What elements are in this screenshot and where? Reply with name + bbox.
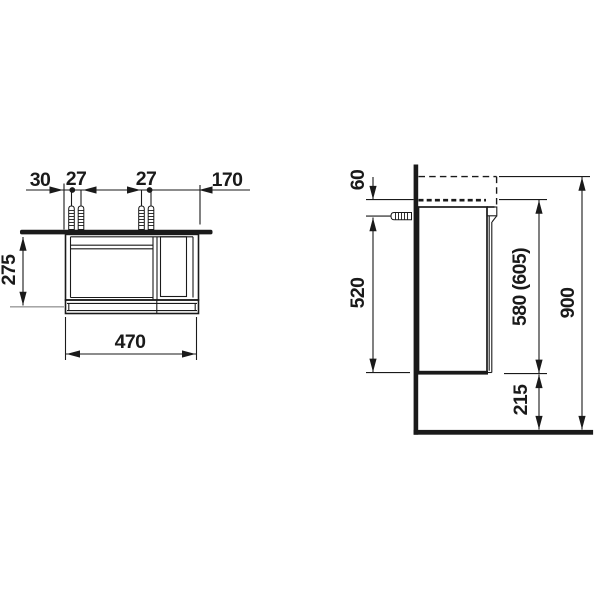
- floor-line: [414, 430, 593, 435]
- bottom-band: [66, 300, 199, 314]
- dimension-drawing: 30 27 27 170: [0, 0, 600, 600]
- dim-label-275: 275: [0, 254, 20, 285]
- arrowhead: [535, 200, 542, 214]
- arrowhead: [535, 375, 542, 389]
- arrowhead: [369, 218, 376, 232]
- side-dim-60: 60: [347, 169, 414, 216]
- front-width-dimension: 470: [66, 317, 197, 360]
- dim-label-900: 900: [557, 287, 579, 318]
- arrowhead: [50, 186, 64, 193]
- front-height-dimension: 275: [0, 237, 64, 307]
- arrowhead: [535, 360, 542, 374]
- dim-label-470: 470: [115, 331, 146, 353]
- dim-label-60: 60: [347, 169, 369, 190]
- side-dim-215: 215: [510, 374, 543, 429]
- mounting-screw-side: [391, 213, 412, 220]
- arrowhead: [578, 177, 585, 191]
- dim-label-215: 215: [510, 384, 532, 415]
- arrowhead: [19, 237, 26, 251]
- mounting-screw: [139, 206, 145, 230]
- front-top-dimension-chain: 30 27 27 170: [26, 168, 250, 230]
- side-dim-520: 520: [347, 218, 410, 373]
- arrowhead: [369, 359, 376, 373]
- arrowhead: [67, 350, 81, 357]
- arrowhead: [19, 292, 26, 306]
- mounting-screws-front: [69, 206, 154, 230]
- arrowhead: [535, 416, 542, 430]
- side-dim-580: 580 (605): [499, 200, 547, 374]
- dim-label-520: 520: [347, 277, 369, 308]
- dim-label-580: 580 (605): [509, 248, 531, 326]
- technical-drawing-canvas: 30 27 27 170: [0, 0, 600, 600]
- mounting-screw: [69, 206, 75, 230]
- wall-line: [414, 165, 419, 435]
- washbasin-dashed-outline: [419, 177, 497, 206]
- arrowhead: [199, 186, 213, 193]
- mounting-screw: [78, 206, 84, 230]
- cabinet-front: [66, 234, 199, 313]
- arrowhead: [369, 186, 376, 200]
- arrowhead: [182, 350, 196, 357]
- front-view: 30 27 27 170: [0, 168, 250, 360]
- dim-label-30: 30: [30, 169, 51, 191]
- door-profile: [487, 207, 497, 373]
- cabinet-side: [417, 207, 497, 375]
- dim-label-27-left: 27: [66, 168, 87, 190]
- dim-label-27-right: 27: [136, 168, 157, 190]
- dim-label-170: 170: [212, 169, 243, 191]
- arrowhead: [578, 416, 585, 430]
- mounting-screw: [148, 206, 154, 230]
- side-compartment: [161, 237, 187, 297]
- side-view: 60 520 580 (605) 215: [347, 165, 593, 435]
